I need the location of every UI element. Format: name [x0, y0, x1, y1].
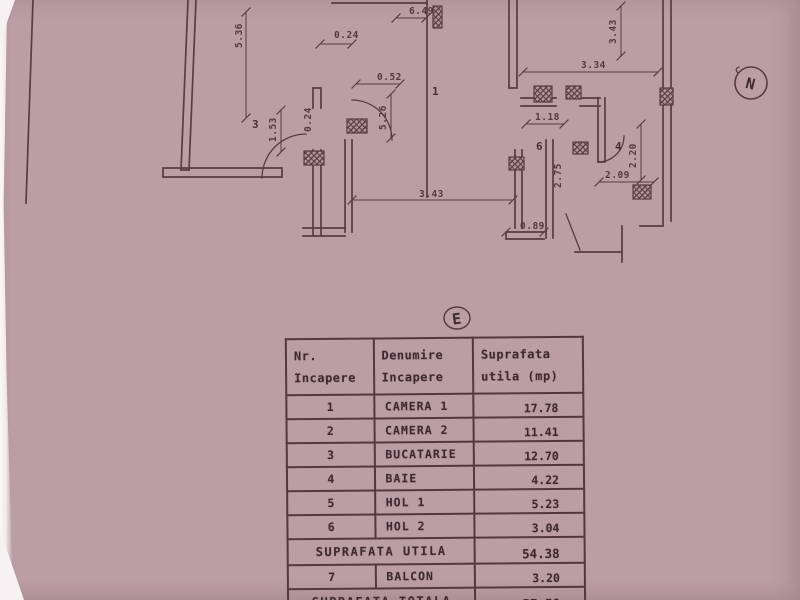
- dimension-label: 0.89: [520, 221, 545, 232]
- north-indicator: N: [735, 67, 767, 99]
- summary-row: SUPRAFATA TOTALA57.58: [288, 587, 585, 600]
- header-nr: Nr. Incapere: [286, 339, 374, 396]
- room-number-cell: 1: [286, 395, 374, 420]
- table-row: 5HOL 15.23: [287, 489, 584, 516]
- room-number-cell: 5: [287, 491, 375, 516]
- dimension-label: 3.34: [581, 60, 606, 71]
- room-area-cell: 4.22: [474, 465, 584, 490]
- dimension-labels: 5.361.530.240.246.490.525.263.433.341.18…: [234, 6, 639, 232]
- room-area-cell: 3.04: [474, 513, 584, 538]
- room-number-cell: 7: [288, 565, 376, 590]
- table-row: 7BALCON3.20: [288, 563, 585, 590]
- north-letter: N: [744, 74, 757, 94]
- dimension-label: 1.53: [268, 117, 279, 142]
- table-row: 1CAMERA 117.78: [286, 393, 583, 420]
- room-name-cell: BUCATARIE: [374, 442, 474, 467]
- room-number-label: 6: [536, 140, 543, 153]
- room-name-cell: HOL 1: [375, 490, 475, 515]
- summary-label: SUPRAFATA UTILA: [288, 538, 475, 566]
- room-number-cell: 6: [287, 515, 375, 540]
- dimension-lines: [246, 6, 658, 200]
- room-number-cell: 2: [286, 419, 374, 444]
- summary-area-value: 57.58: [475, 587, 585, 600]
- scan-content: 5.361.530.240.246.490.525.263.433.341.18…: [0, 0, 800, 600]
- room-name-cell: BAIE: [374, 466, 474, 491]
- room-number-cell: 4: [287, 467, 375, 492]
- room-name-cell: BALCON: [375, 564, 475, 589]
- header-suprafata: Suprafata utila (mp): [473, 337, 584, 394]
- room-area-table: Nr. Incapere Denumire Incapere Suprafata…: [285, 336, 586, 600]
- summary-area-value: 54.38: [475, 537, 585, 564]
- header-nr-line1: Nr.: [294, 344, 371, 367]
- room-number-label: 3: [252, 118, 259, 131]
- dimension-label: 2.75: [553, 163, 564, 188]
- header-suprafata-line1: Suprafata: [481, 343, 580, 366]
- header-denumire-line2: Incapere: [382, 366, 471, 389]
- header-nr-line2: Incapere: [294, 367, 371, 390]
- dimension-label: 6.49: [409, 6, 434, 17]
- dimension-label: 3.43: [608, 19, 619, 44]
- room-number-label: 1: [432, 85, 439, 98]
- table-row: 2CAMERA 211.41: [286, 417, 583, 444]
- table-header-row: Nr. Incapere Denumire Incapere Suprafata…: [286, 337, 583, 396]
- dimension-label: 2.09: [605, 170, 630, 181]
- dimension-label: 2.20: [628, 143, 639, 168]
- section-letter: E: [451, 310, 462, 329]
- header-denumire: Denumire Incapere: [373, 338, 473, 395]
- summary-row: SUPRAFATA UTILA54.38: [288, 537, 585, 566]
- room-area-cell: 5.23: [474, 489, 584, 514]
- room-area-cell: 3.20: [475, 563, 585, 588]
- dimension-label: 0.52: [377, 72, 402, 83]
- section-marker: E: [444, 307, 470, 329]
- scanned-floorplan-page: 5.361.530.240.246.490.525.263.433.341.18…: [0, 0, 800, 600]
- room-name-cell: CAMERA 1: [374, 394, 474, 419]
- room-name-cell: HOL 2: [375, 514, 475, 539]
- room-number-label: 4: [615, 140, 622, 153]
- dimension-label: 5.26: [378, 105, 389, 130]
- room-number-cell: 3: [287, 443, 375, 468]
- room-name-cell: CAMERA 2: [374, 418, 474, 443]
- header-denumire-line1: Denumire: [381, 344, 470, 367]
- summary-label: SUPRAFATA TOTALA: [288, 588, 475, 600]
- room-area-cell: 17.78: [473, 393, 583, 418]
- dimension-label: 0.24: [334, 30, 359, 41]
- table-row: 4BAIE4.22: [287, 465, 584, 492]
- dimension-label: 0.24: [303, 107, 314, 132]
- room-area-cell: 11.41: [473, 417, 583, 442]
- room-area-cell: 12.70: [474, 441, 584, 466]
- table-row: 6HOL 23.04: [287, 513, 584, 540]
- dimension-label: 3.43: [419, 189, 444, 200]
- header-suprafata-line2: utila (mp): [481, 365, 580, 388]
- dimension-label: 1.18: [535, 112, 560, 123]
- table-row: 3BUCATARIE12.70: [287, 441, 584, 468]
- dimension-label: 5.36: [234, 23, 245, 48]
